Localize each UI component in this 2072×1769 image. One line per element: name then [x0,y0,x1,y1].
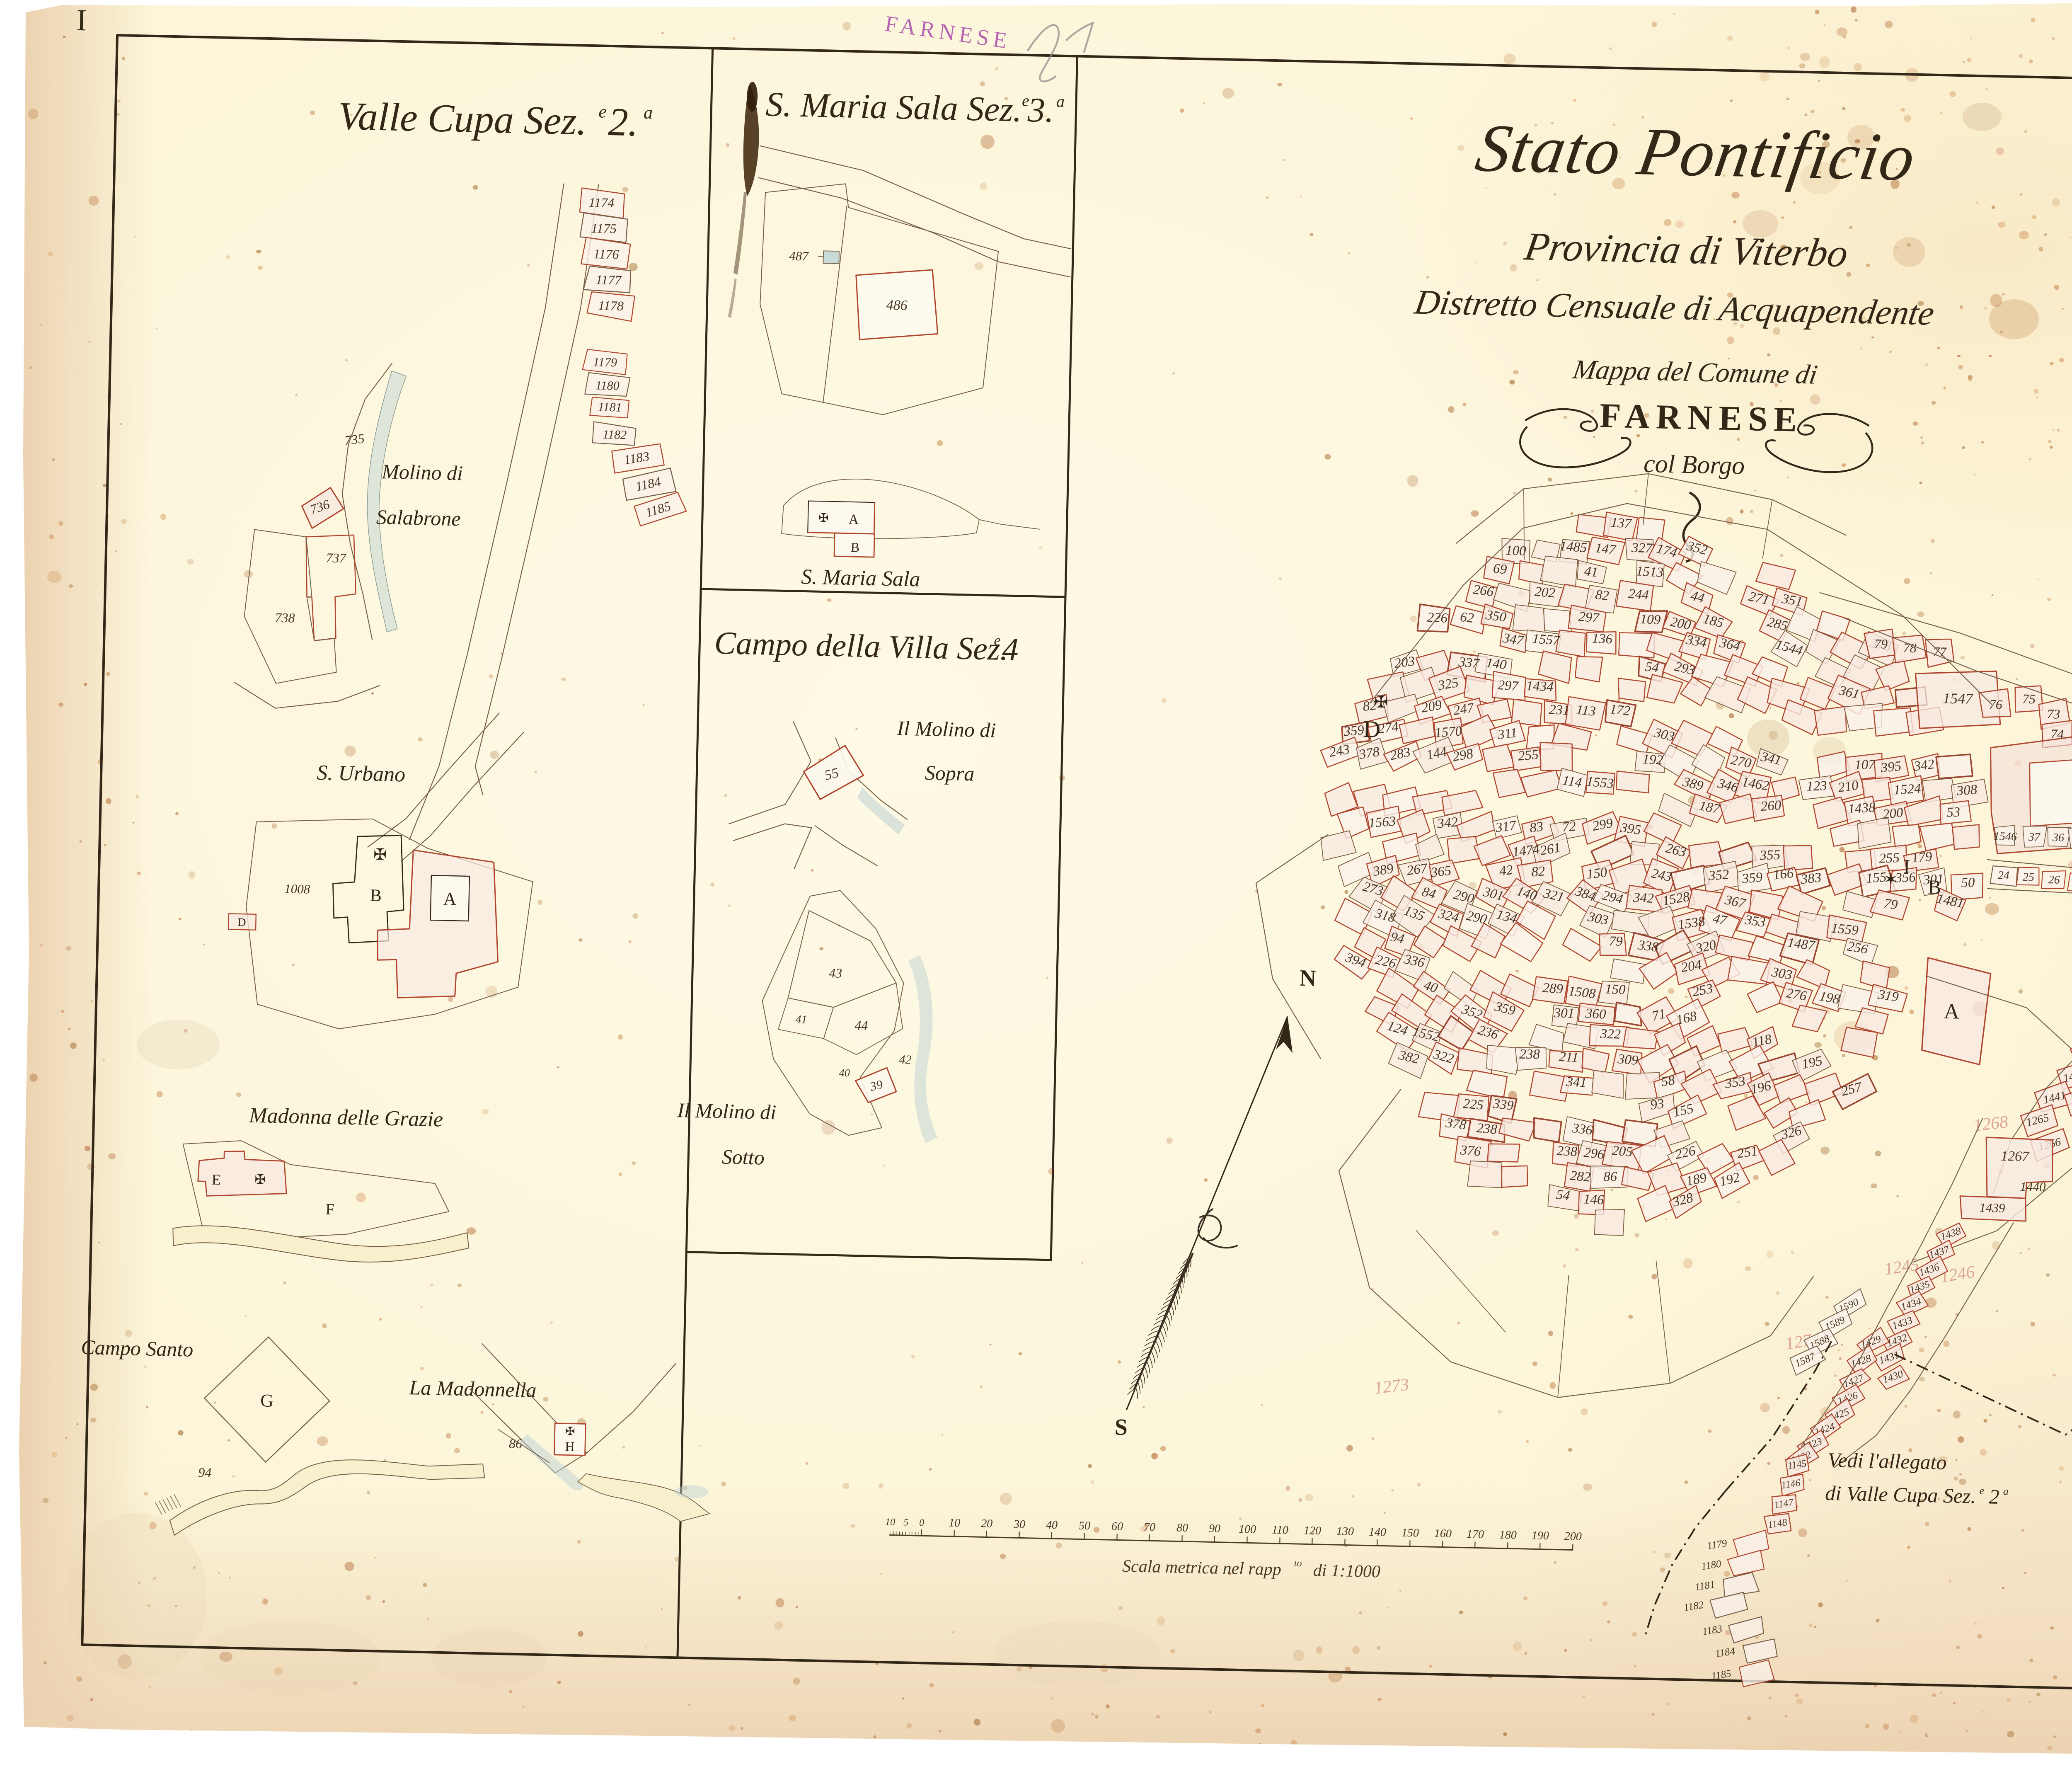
svg-text:e: e [994,632,1001,649]
svg-text:1175: 1175 [591,221,617,236]
svg-text:1513: 1513 [1636,564,1664,580]
svg-text:24: 24 [1998,869,2010,882]
svg-text:Mappa del Comune di: Mappa del Comune di [1571,354,1820,390]
svg-text:50: 50 [1079,1519,1091,1532]
svg-text:Molino di: Molino di [381,460,463,485]
svg-text:69: 69 [1492,561,1508,577]
svg-text:338: 338 [1636,938,1659,955]
svg-text:136: 136 [1592,631,1613,647]
svg-text:150: 150 [1605,981,1626,997]
svg-text:B: B [370,886,382,906]
svg-text:B: B [850,540,859,555]
svg-text:I: I [1903,856,1910,878]
svg-text:73: 73 [2047,706,2060,722]
svg-text:40: 40 [1046,1519,1058,1532]
svg-text:238: 238 [1556,1144,1578,1159]
svg-text:Sopra: Sopra [925,761,975,785]
svg-text:350: 350 [1484,608,1507,625]
svg-text:180: 180 [1499,1529,1517,1542]
svg-text:54: 54 [1555,1187,1571,1204]
svg-text:1268: 1268 [1973,1112,2009,1136]
svg-text:✠: ✠ [254,1172,266,1187]
svg-text:311: 311 [1496,725,1518,743]
svg-text:A: A [1944,1000,1960,1024]
svg-text:365: 365 [1430,863,1452,880]
svg-text:10: 10 [885,1517,896,1528]
svg-text:166: 166 [1772,866,1795,883]
svg-text:1180: 1180 [595,378,620,393]
svg-text:✠: ✠ [373,846,387,864]
svg-text:282: 282 [1569,1168,1591,1185]
svg-text:1559: 1559 [1830,921,1859,938]
svg-text:342: 342 [1632,890,1654,906]
svg-text:44: 44 [854,1018,868,1033]
svg-text:147: 147 [1594,540,1617,557]
svg-text:54: 54 [1644,659,1660,676]
svg-text:a: a [644,102,653,123]
svg-text:e: e [598,101,607,121]
svg-text:130: 130 [1336,1525,1354,1538]
svg-text:123: 123 [1806,778,1827,794]
svg-text:107: 107 [1854,757,1876,773]
svg-text:Madonna delle Grazie: Madonna delle Grazie [249,1104,443,1132]
svg-text:395: 395 [1880,758,1902,775]
svg-text:1008: 1008 [284,881,310,896]
svg-text:79: 79 [1874,636,1888,652]
svg-text:D: D [1363,715,1381,743]
svg-text:238: 238 [1476,1121,1498,1137]
svg-text:✶: ✶ [1883,870,1898,889]
svg-text:Salabrone: Salabrone [376,505,461,530]
svg-text:352: 352 [1708,867,1730,883]
svg-text:79: 79 [1609,934,1623,949]
svg-text:190: 190 [1532,1529,1549,1542]
svg-text:308: 308 [1956,782,1978,799]
svg-text:1438: 1438 [1847,800,1876,817]
svg-text:86: 86 [1603,1169,1617,1184]
svg-text:100: 100 [1239,1523,1256,1536]
svg-text:H: H [565,1439,575,1454]
svg-text:Campo della Villa Sez.: Campo della Villa Sez. [714,625,1009,667]
svg-text:336: 336 [1571,1121,1593,1138]
svg-text:36: 36 [2052,831,2065,844]
svg-text:✠: ✠ [565,1425,575,1438]
svg-text:170: 170 [1467,1528,1484,1541]
svg-text:26: 26 [2048,873,2060,887]
svg-text:200: 200 [1564,1530,1582,1543]
svg-text:1182: 1182 [603,428,627,442]
svg-text:341: 341 [1565,1074,1587,1090]
svg-text:342: 342 [1436,815,1458,831]
svg-text:735: 735 [344,431,365,448]
svg-text:1439: 1439 [1979,1200,2005,1215]
svg-text:1177: 1177 [595,272,622,287]
svg-text:N: N [1299,965,1317,991]
svg-text:S. Maria Sala Sez.: S. Maria Sala Sez. [765,85,1022,129]
svg-text:Campo Santo: Campo Santo [81,1335,194,1361]
svg-text:1434: 1434 [1526,679,1554,695]
svg-text:266: 266 [1472,582,1495,599]
svg-text:192: 192 [1642,752,1663,768]
svg-text:76: 76 [1989,697,2002,712]
svg-text:327: 327 [1631,540,1653,556]
svg-text:297: 297 [1497,678,1519,694]
svg-text:255: 255 [1518,747,1539,764]
svg-text:1508: 1508 [1568,984,1597,1001]
svg-text:322: 322 [1600,1026,1621,1042]
svg-text:1267: 1267 [2001,1149,2030,1165]
svg-text:204: 204 [1680,957,1702,975]
svg-text:79: 79 [1883,896,1899,913]
svg-text:Stato Pontificio: Stato Pontificio [1471,110,1921,195]
svg-text:137: 137 [1610,515,1633,532]
svg-text:210: 210 [1837,778,1859,795]
svg-text:110: 110 [1272,1524,1289,1537]
svg-text:1440: 1440 [2020,1179,2046,1194]
svg-text:82: 82 [1531,864,1546,880]
svg-text:93: 93 [1649,1096,1665,1113]
svg-text:di 1:1000: di 1:1000 [1313,1561,1380,1582]
svg-text:30: 30 [1013,1518,1026,1531]
svg-text:140: 140 [1369,1526,1387,1539]
svg-text:146: 146 [1583,1192,1604,1207]
svg-text:FARNESE: FARNESE [1599,396,1803,439]
svg-text:1570: 1570 [1434,724,1463,741]
svg-text:F: F [325,1201,334,1218]
svg-text:179: 179 [1911,849,1933,866]
svg-text:1557: 1557 [1532,631,1561,648]
svg-text:42: 42 [1498,863,1514,879]
svg-text:53: 53 [1946,805,1961,820]
svg-text:317: 317 [1494,818,1518,836]
svg-text:77: 77 [1933,644,1947,659]
svg-text:353: 353 [1723,1074,1746,1092]
svg-text:225: 225 [1462,1096,1484,1113]
svg-text:738: 738 [275,610,295,625]
svg-text:43: 43 [829,965,842,981]
svg-text:160: 160 [1434,1527,1452,1540]
svg-text:359: 359 [1343,722,1365,739]
svg-text:1178: 1178 [598,298,624,313]
svg-text:I: I [76,3,87,38]
svg-text:40: 40 [839,1067,850,1079]
svg-text:S. Urbano: S. Urbano [317,761,406,787]
svg-text:3.: 3. [1027,91,1054,130]
svg-text:120: 120 [1304,1524,1322,1537]
svg-text:1174: 1174 [588,195,614,210]
svg-text:113: 113 [1576,703,1596,719]
svg-text:42: 42 [899,1053,912,1067]
svg-text:238: 238 [1519,1047,1540,1062]
svg-text:1181: 1181 [598,400,622,414]
svg-text:140: 140 [1485,655,1508,673]
svg-text:70: 70 [1144,1521,1156,1534]
svg-text:a: a [1056,92,1065,110]
svg-text:297: 297 [1578,609,1600,626]
svg-text:94: 94 [198,1465,212,1480]
svg-text:A: A [848,512,859,528]
svg-text:247: 247 [1452,700,1475,718]
svg-text:267: 267 [1406,861,1429,878]
svg-text:90: 90 [1209,1522,1221,1535]
svg-text:200: 200 [1882,805,1904,822]
svg-text:5: 5 [903,1517,909,1528]
svg-text:Valle Cupa Sez.: Valle Cupa Sez. [338,94,587,143]
svg-text:1547: 1547 [1943,690,1974,707]
svg-text:260: 260 [1760,798,1782,814]
svg-text:G: G [260,1390,274,1411]
svg-text:1176: 1176 [593,246,619,262]
svg-text:211: 211 [1559,1049,1579,1066]
svg-text:60: 60 [1111,1520,1123,1533]
svg-text:1485: 1485 [1559,539,1587,556]
svg-text:37: 37 [2028,831,2041,844]
svg-text:Provincia di Viterbo: Provincia di Viterbo [1521,224,1852,275]
svg-text:360: 360 [1585,1006,1607,1022]
svg-text:205: 205 [1612,1143,1633,1160]
svg-text:353: 353 [1743,912,1766,930]
svg-text:50: 50 [1961,875,1975,890]
svg-text:0: 0 [919,1517,925,1528]
svg-text:383: 383 [1800,870,1822,887]
svg-text:1546: 1546 [1994,830,2017,843]
svg-text:B: B [1928,876,1941,899]
svg-text:e: e [1979,1485,1984,1497]
svg-text:1524: 1524 [1893,781,1921,798]
svg-text:378: 378 [1445,1115,1467,1133]
svg-text:337: 337 [1457,654,1480,671]
svg-text:Vedi l'allegato: Vedi l'allegato [1828,1448,1947,1474]
svg-text:80: 80 [1176,1522,1188,1535]
svg-text:S. Maria Sala: S. Maria Sala [801,565,921,591]
svg-text:✠: ✠ [818,511,829,525]
svg-text:Sotto: Sotto [721,1145,765,1169]
svg-text:301: 301 [1553,1006,1575,1021]
svg-text:231: 231 [1549,702,1570,718]
svg-text:to: to [1294,1558,1302,1569]
svg-text:75: 75 [2022,691,2036,707]
svg-text:a: a [2003,1485,2009,1497]
svg-text:342: 342 [1912,757,1935,774]
svg-text:4: 4 [1002,631,1019,667]
svg-text:25: 25 [2022,871,2034,884]
svg-text:2: 2 [1989,1485,1999,1508]
svg-text:82: 82 [1595,587,1610,603]
svg-text:58: 58 [1660,1073,1676,1090]
svg-text:109: 109 [1640,612,1661,628]
svg-text:E: E [211,1171,221,1188]
svg-text:Scala metrica nel rapp: Scala metrica nel rapp [1122,1557,1282,1579]
svg-text:202: 202 [1534,584,1556,601]
svg-text:487: 487 [789,248,809,263]
svg-text:Il Molino di: Il Molino di [896,716,996,742]
svg-text:114: 114 [1561,773,1583,790]
svg-text:150: 150 [1402,1526,1419,1539]
svg-text:737: 737 [326,550,347,565]
svg-text:1179: 1179 [593,355,617,369]
svg-text:62: 62 [1460,610,1475,626]
svg-text:347: 347 [1501,630,1525,648]
svg-text:309: 309 [1617,1052,1639,1068]
svg-text:376: 376 [1460,1143,1482,1159]
svg-text:D: D [237,916,246,929]
svg-text:1273: 1273 [1373,1375,1410,1398]
svg-text:2.: 2. [608,99,639,145]
svg-text:244: 244 [1628,586,1649,603]
svg-text:1553: 1553 [1586,774,1615,792]
svg-text:359: 359 [1741,870,1763,886]
svg-text:486: 486 [886,298,908,313]
svg-text:251: 251 [1736,1144,1759,1161]
svg-text:72: 72 [1561,819,1576,835]
svg-text:41: 41 [1583,564,1599,580]
svg-text:319: 319 [1877,987,1900,1005]
svg-text:La Madonnella: La Madonnella [409,1376,537,1402]
svg-text:di Valle Cupa Sez.: di Valle Cupa Sez. [1825,1481,1976,1508]
svg-text:1563: 1563 [1368,814,1397,831]
svg-text:172: 172 [1609,702,1631,719]
svg-text:289: 289 [1542,980,1564,996]
svg-text:10: 10 [949,1517,961,1530]
svg-text:100: 100 [1505,543,1526,559]
svg-text:20: 20 [981,1517,993,1530]
svg-text:296: 296 [1583,1145,1605,1162]
svg-text:339: 339 [1492,1096,1515,1114]
svg-text:83: 83 [1529,819,1544,836]
svg-text:355: 355 [1759,848,1781,863]
svg-text:150: 150 [1586,865,1608,882]
svg-text:255: 255 [1879,851,1900,866]
svg-text:A: A [443,889,457,909]
svg-text:S: S [1114,1414,1128,1440]
svg-text:395: 395 [1619,820,1642,838]
svg-text:Il Molino di: Il Molino di [677,1098,777,1124]
svg-text:41: 41 [795,1013,807,1026]
